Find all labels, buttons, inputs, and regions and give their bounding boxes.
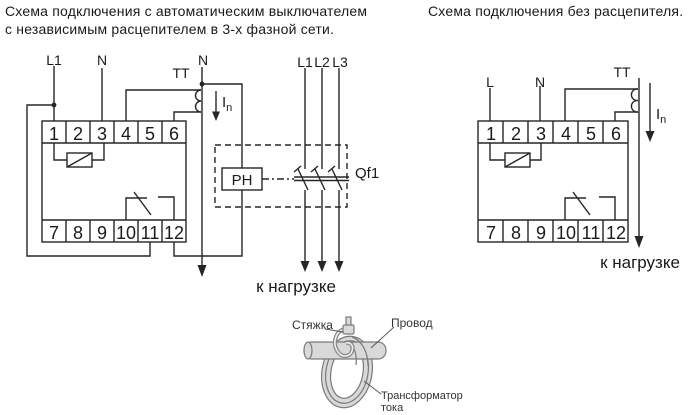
- left-label-tt: TT: [172, 65, 189, 81]
- figure-label-tie: Стяжка: [292, 319, 333, 333]
- terminal-cell: 1: [486, 124, 496, 145]
- left-label-n-load: N: [198, 52, 208, 68]
- figure-label-ct-line1: Трансформатор: [381, 390, 463, 403]
- left-label-n-input: N: [97, 52, 107, 68]
- terminal-cell: 9: [97, 223, 107, 244]
- terminal-cell: 5: [586, 124, 596, 145]
- terminal-cell: 3: [97, 124, 107, 145]
- arrowhead: [335, 261, 344, 272]
- right-supply-wires: [490, 86, 540, 121]
- ct-coil-icon: [196, 90, 202, 112]
- left-relay-contact-symbol: [126, 192, 174, 220]
- left-label-l1: L1: [46, 52, 62, 68]
- terminal-cell: 2: [73, 124, 83, 145]
- left-release-wire: [174, 190, 242, 256]
- right-label-in-current: In: [656, 106, 666, 127]
- terminal-cell: 9: [536, 223, 546, 244]
- left-label-phase-l1: L1: [297, 54, 313, 70]
- junction-dot: [200, 82, 205, 87]
- dots-and-arrowheads: [52, 82, 655, 277]
- terminal-cell: 8: [73, 223, 83, 244]
- right-label-l: L: [486, 74, 494, 90]
- terminal-cell: 8: [511, 223, 521, 244]
- breaker-label: Qf1: [355, 165, 379, 182]
- terminal-cell: 7: [49, 223, 59, 244]
- arrowhead: [646, 131, 655, 142]
- left-coil-symbol: [54, 143, 104, 167]
- terminal-cell: 2: [511, 124, 521, 145]
- right-label-tt: TT: [613, 64, 630, 80]
- left-diagram-title-line2: с независимым расцепителем в 3-х фазной …: [5, 21, 334, 37]
- figure-label-ct-line2: тока: [381, 402, 403, 415]
- schematic-page: Схема подключения с автоматическим выклю…: [0, 0, 700, 414]
- figure-label-wire: Провод: [391, 317, 433, 331]
- left-label-phase-l3: L3: [332, 54, 348, 70]
- arrowhead: [301, 261, 310, 272]
- right-label-n: N: [535, 74, 545, 90]
- ct-coil-icon: [631, 89, 638, 112]
- terminal-cell: 6: [169, 124, 179, 145]
- left-label-phase-l2: L2: [314, 54, 330, 70]
- breaker-poles: [294, 68, 342, 262]
- arrowhead: [212, 112, 220, 122]
- left-load-label: к нагрузке: [256, 277, 336, 297]
- terminal-cell: 4: [561, 124, 571, 145]
- terminal-cell: 1: [49, 124, 59, 145]
- junction-dot: [52, 103, 57, 108]
- terminal-cell: 6: [611, 124, 621, 145]
- terminal-cell: 7: [486, 223, 496, 244]
- right-diagram-lines: [478, 78, 650, 242]
- left-diagram-title-line1: Схема подключения с автоматическим выклю…: [5, 3, 367, 19]
- terminal-cell: 11: [582, 223, 601, 244]
- arrowhead: [318, 261, 327, 272]
- terminal-cell: 10: [556, 223, 576, 244]
- right-relay-contact-symbol: [565, 192, 615, 220]
- arrowhead: [635, 236, 644, 248]
- right-diagram-title: Схема подключения без расцепителя.: [428, 3, 683, 19]
- terminal-cell: 3: [536, 124, 546, 145]
- arrowhead: [198, 265, 207, 277]
- right-load-label: к нагрузке: [600, 253, 680, 273]
- terminal-cell: 12: [606, 223, 626, 244]
- right-ct-wiring: [565, 78, 650, 237]
- right-coil-symbol: [490, 143, 541, 167]
- terminal-cell: 12: [164, 223, 184, 244]
- terminal-cell: 11: [141, 223, 160, 244]
- left-label-in-current: In: [222, 94, 232, 115]
- terminal-cell: 4: [121, 124, 131, 145]
- release-coil-label: РН: [232, 172, 253, 189]
- terminal-cell: 10: [116, 223, 136, 244]
- terminal-cell: 5: [145, 124, 155, 145]
